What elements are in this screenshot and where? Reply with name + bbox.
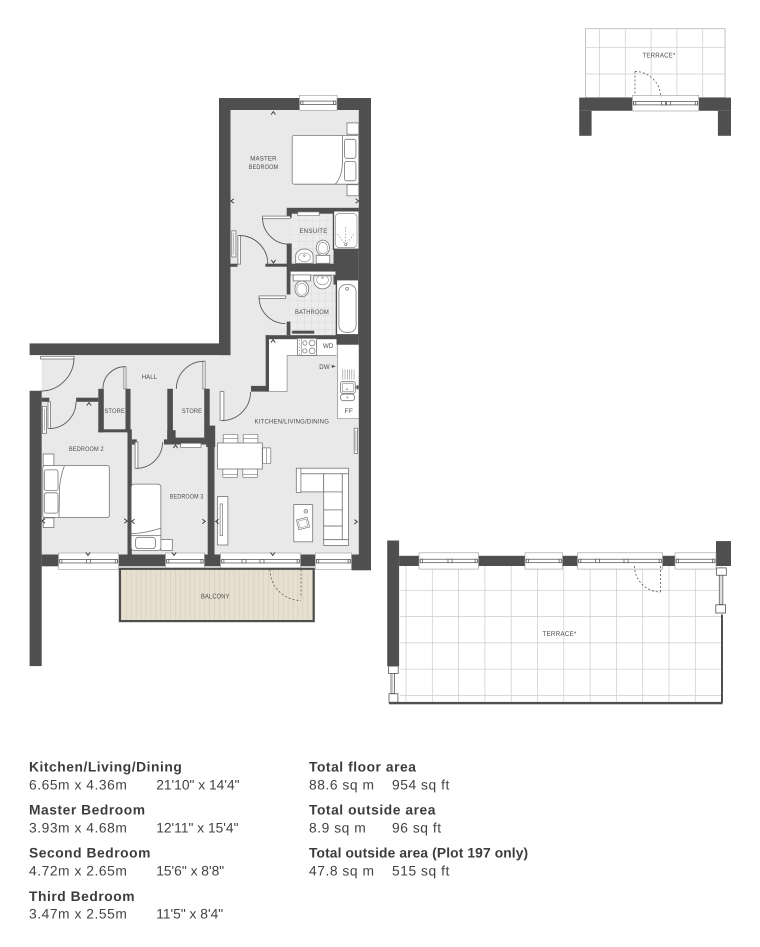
svg-text:Total outside area: Total outside area	[309, 803, 436, 818]
svg-text:3.47m x 2.55m: 3.47m x 2.55m	[29, 907, 127, 922]
svg-text:954 sq ft: 954 sq ft	[392, 777, 450, 792]
svg-text:DW: DW	[319, 364, 330, 371]
svg-text:Kitchen/Living/Dining: Kitchen/Living/Dining	[29, 760, 182, 775]
svg-text:3.93m x 4.68m: 3.93m x 4.68m	[29, 820, 127, 835]
svg-text:BATHROOM: BATHROOM	[295, 309, 329, 316]
svg-text:96 sq ft: 96 sq ft	[392, 820, 442, 835]
svg-text:15'6" x 8'8": 15'6" x 8'8"	[156, 864, 224, 879]
svg-text:BEDROOM 2: BEDROOM 2	[69, 446, 104, 453]
svg-text:STORE: STORE	[104, 408, 125, 415]
svg-text:HALL: HALL	[142, 374, 158, 381]
svg-text:47.8 sq m: 47.8 sq m	[309, 864, 375, 879]
svg-text:BALCONY: BALCONY	[201, 594, 230, 601]
svg-text:BEDROOM 3: BEDROOM 3	[170, 493, 204, 500]
svg-text:BEDROOM: BEDROOM	[249, 164, 279, 171]
svg-text:88.6 sq m: 88.6 sq m	[309, 777, 375, 792]
svg-text:STORE: STORE	[182, 408, 203, 415]
svg-text:Second Bedroom: Second Bedroom	[29, 846, 151, 861]
svg-text:4.72m x 2.65m: 4.72m x 2.65m	[29, 864, 127, 879]
svg-text:Third Bedroom: Third Bedroom	[29, 889, 135, 904]
svg-text:21'10" x 14'4": 21'10" x 14'4"	[156, 777, 239, 792]
svg-text:Total outside area (Plot 197 o: Total outside area (Plot 197 only)	[309, 846, 528, 861]
svg-text:WD: WD	[323, 343, 334, 350]
svg-text:FF: FF	[345, 408, 354, 415]
svg-text:TERRACE*: TERRACE*	[643, 52, 676, 59]
svg-text:8.9 sq m: 8.9 sq m	[309, 820, 366, 835]
svg-text:6.65m x 4.36m: 6.65m x 4.36m	[29, 777, 127, 792]
svg-text:12'11" x 15'4": 12'11" x 15'4"	[156, 820, 238, 835]
svg-text:ENSUITE: ENSUITE	[300, 228, 328, 235]
svg-text:TERRACE*: TERRACE*	[543, 631, 577, 638]
svg-text:11'5" x 8'4": 11'5" x 8'4"	[156, 907, 223, 922]
svg-text:KITCHEN/LIVING/DINING: KITCHEN/LIVING/DINING	[255, 419, 330, 426]
svg-text:MASTER: MASTER	[250, 156, 277, 163]
svg-text:Master Bedroom: Master Bedroom	[29, 803, 146, 818]
svg-text:515 sq ft: 515 sq ft	[392, 864, 450, 879]
svg-text:Total floor area: Total floor area	[309, 760, 416, 775]
